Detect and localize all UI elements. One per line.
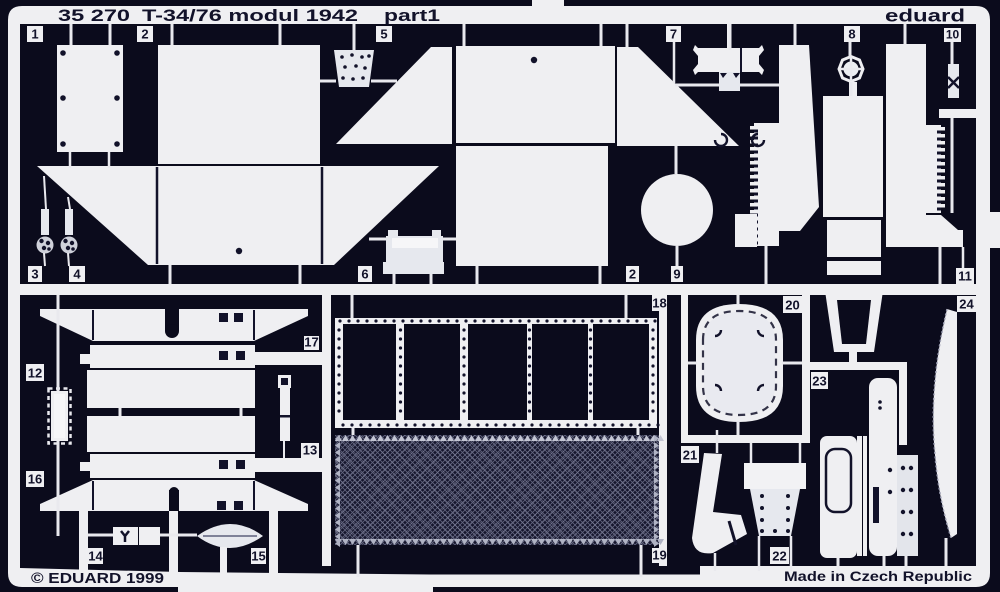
svg-text:5: 5 bbox=[380, 27, 387, 42]
svg-text:16: 16 bbox=[28, 472, 42, 487]
svg-text:7: 7 bbox=[670, 27, 677, 42]
svg-text:15: 15 bbox=[251, 549, 265, 564]
svg-text:10: 10 bbox=[946, 28, 960, 42]
svg-text:19: 19 bbox=[652, 548, 666, 563]
svg-text:35 270: 35 270 bbox=[58, 6, 130, 25]
svg-text:part1: part1 bbox=[384, 6, 440, 25]
svg-text:18: 18 bbox=[652, 296, 666, 311]
svg-text:12: 12 bbox=[28, 366, 42, 381]
svg-text:9: 9 bbox=[673, 267, 680, 282]
svg-text:23: 23 bbox=[812, 374, 826, 389]
svg-text:22: 22 bbox=[772, 549, 786, 564]
svg-text:eduard: eduard bbox=[885, 6, 965, 26]
svg-text:2: 2 bbox=[141, 27, 148, 42]
svg-text:21: 21 bbox=[683, 448, 697, 463]
svg-text:© EDUARD 1999: © EDUARD 1999 bbox=[31, 571, 164, 587]
svg-text:1: 1 bbox=[31, 27, 38, 42]
svg-text:Made in Czech Republic: Made in Czech Republic bbox=[784, 569, 973, 584]
svg-text:4: 4 bbox=[73, 267, 81, 282]
svg-text:13: 13 bbox=[303, 443, 317, 458]
svg-text:14: 14 bbox=[88, 549, 103, 564]
svg-text:11: 11 bbox=[958, 269, 972, 284]
svg-text:3: 3 bbox=[31, 267, 38, 282]
svg-text:17: 17 bbox=[304, 335, 318, 350]
svg-text:8: 8 bbox=[848, 27, 855, 42]
svg-text:24: 24 bbox=[959, 297, 974, 312]
svg-text:20: 20 bbox=[785, 298, 799, 313]
svg-text:6: 6 bbox=[361, 267, 368, 282]
svg-text:T-34/76 modul 1942: T-34/76 modul 1942 bbox=[142, 6, 358, 25]
svg-text:2: 2 bbox=[629, 267, 636, 282]
